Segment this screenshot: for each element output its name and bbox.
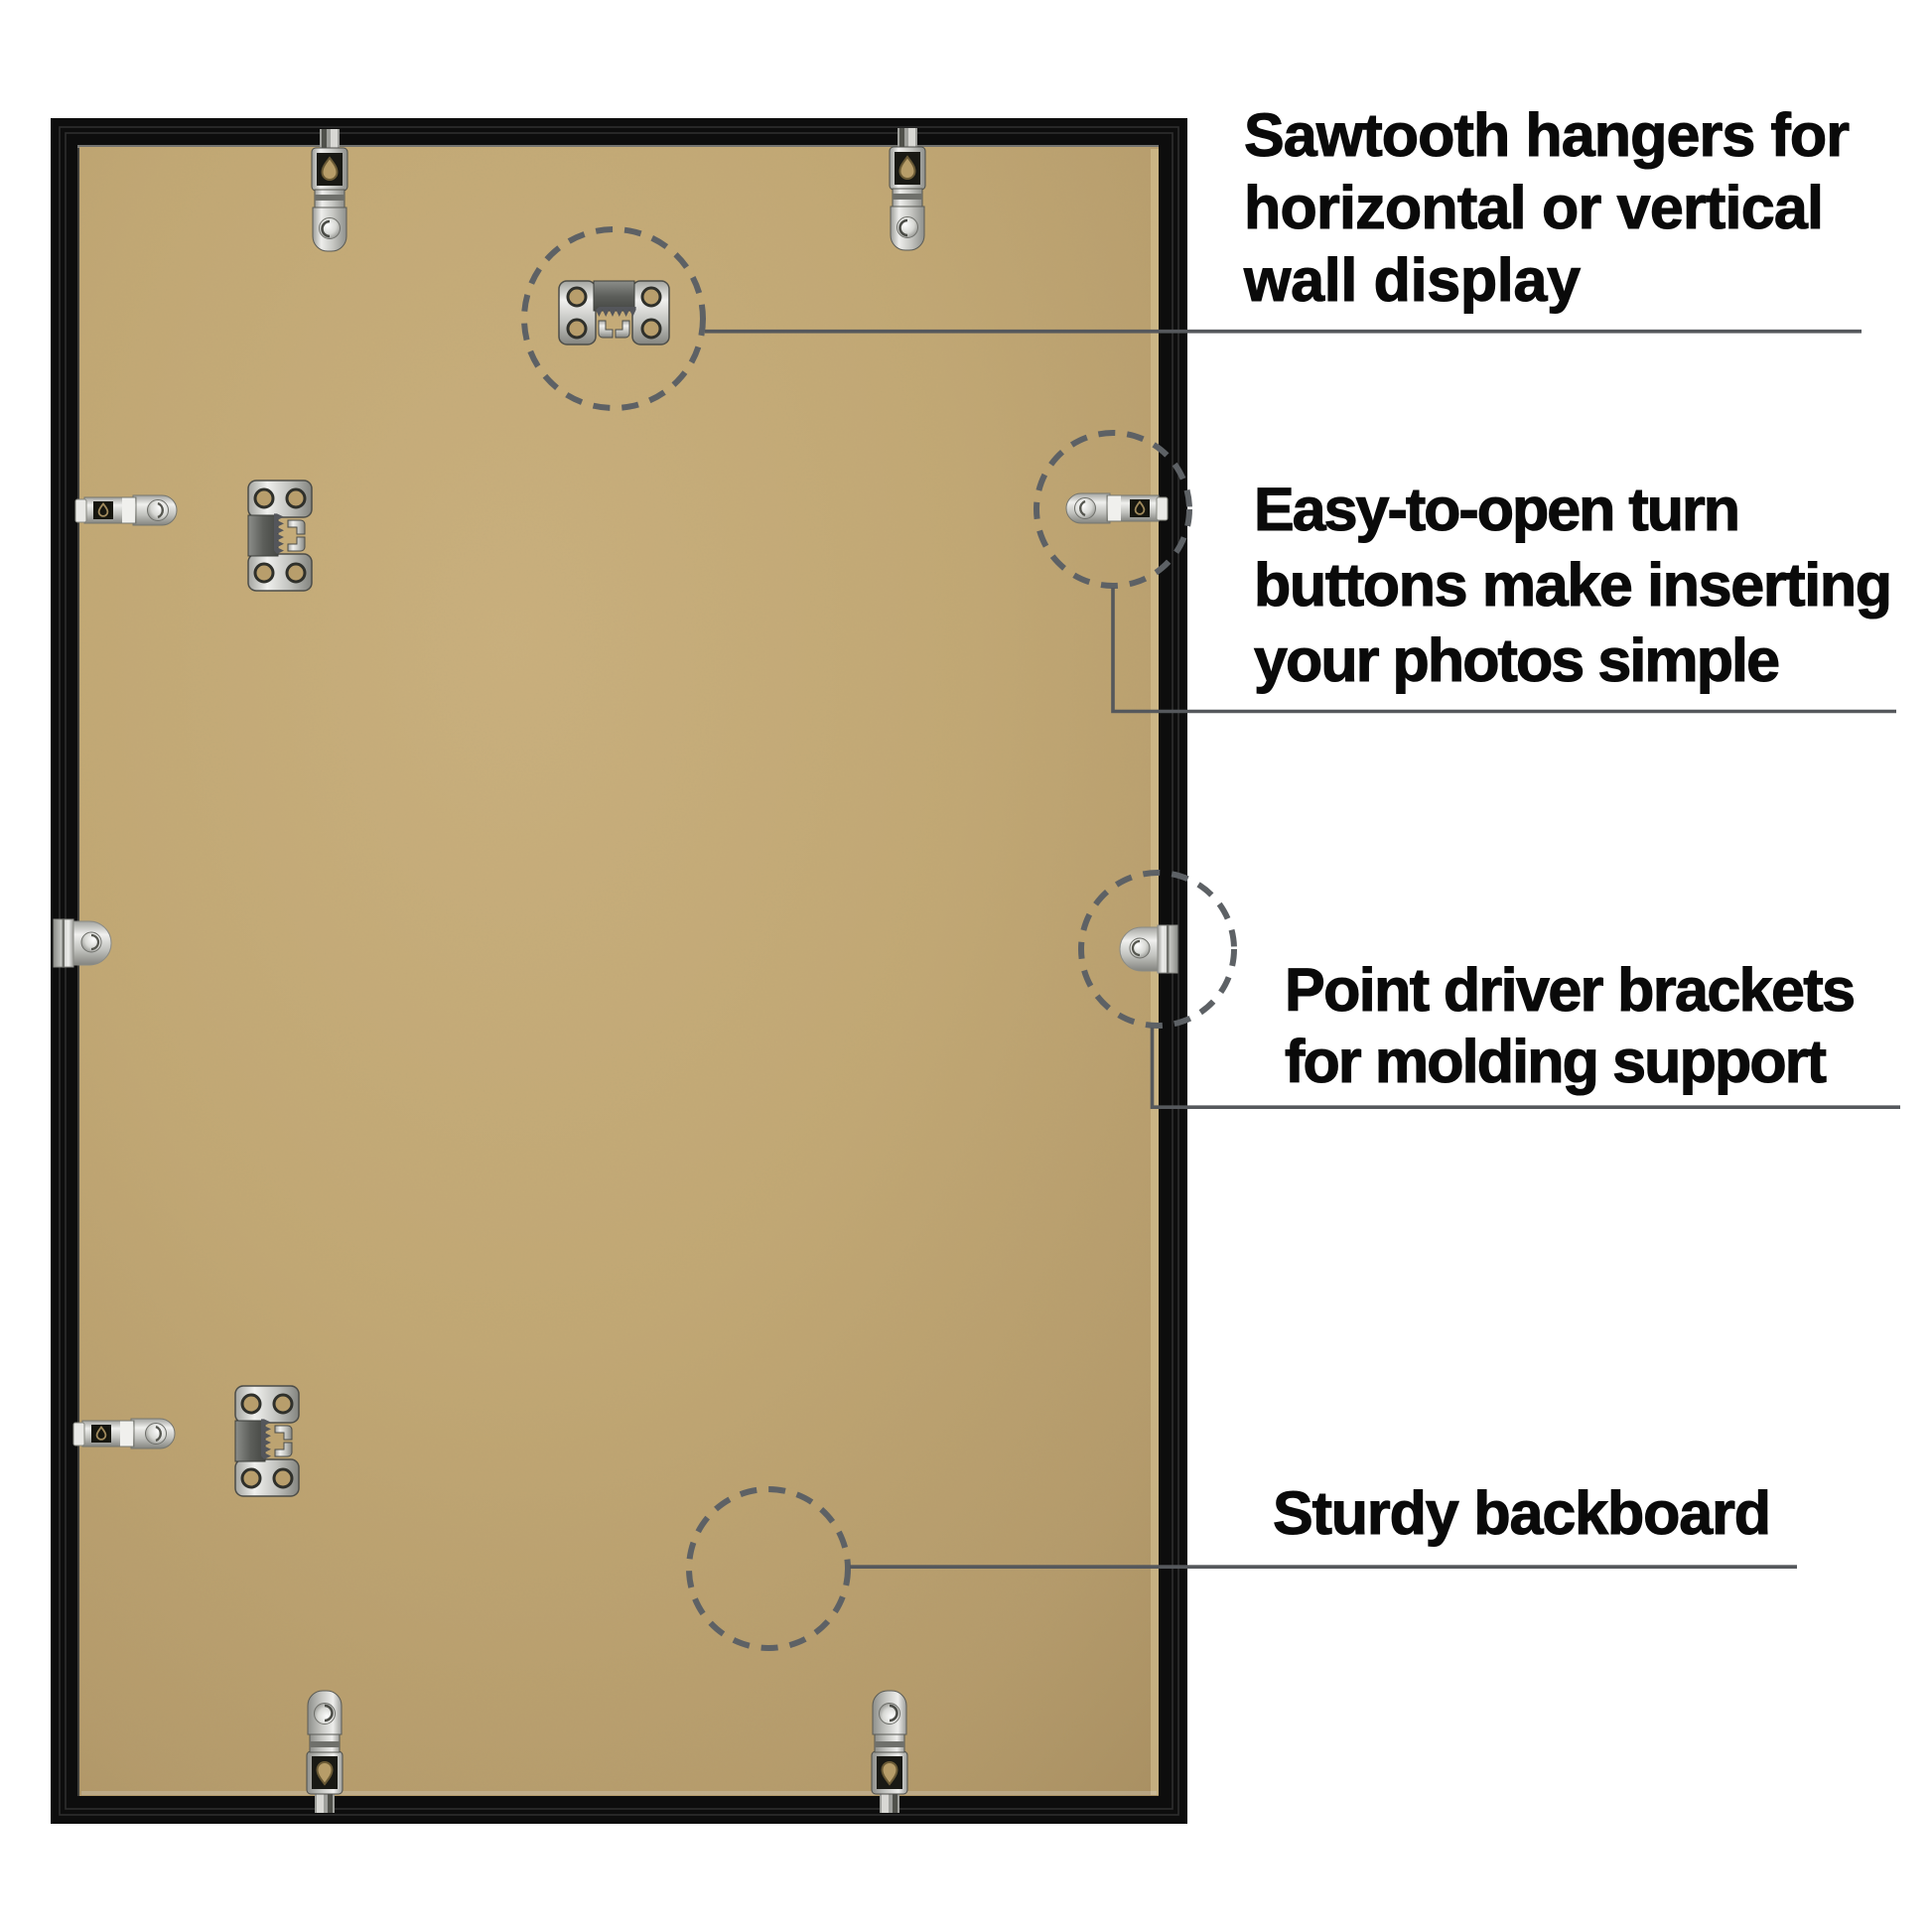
svg-text:Easy-to-open turn: Easy-to-open turn xyxy=(1254,476,1740,543)
svg-text:your photos simple: your photos simple xyxy=(1254,626,1780,694)
svg-text:Sturdy backboard: Sturdy backboard xyxy=(1273,1479,1771,1547)
svg-text:horizontal or vertical: horizontal or vertical xyxy=(1244,174,1824,241)
svg-text:for molding support: for molding support xyxy=(1285,1028,1827,1095)
svg-text:wall display: wall display xyxy=(1243,246,1581,314)
svg-text:buttons make inserting: buttons make inserting xyxy=(1254,551,1892,619)
svg-text:Sawtooth hangers for: Sawtooth hangers for xyxy=(1244,101,1850,169)
svg-text:Point driver brackets: Point driver brackets xyxy=(1285,956,1856,1024)
